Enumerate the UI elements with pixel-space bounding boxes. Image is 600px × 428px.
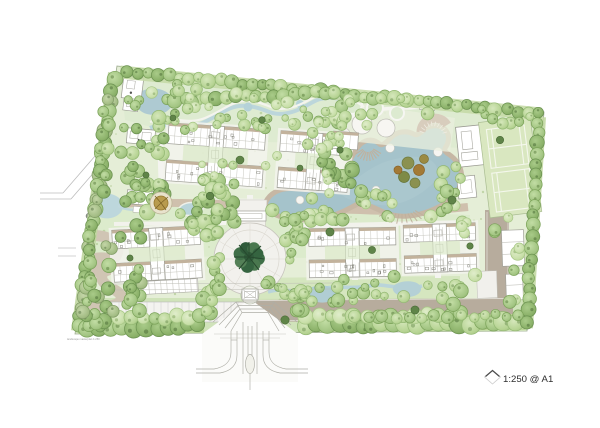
svg-text:1:250 @ A1: 1:250 @ A1 [503,374,553,385]
svg-text:landscape masterplan 1:250: landscape masterplan 1:250 [67,337,100,341]
